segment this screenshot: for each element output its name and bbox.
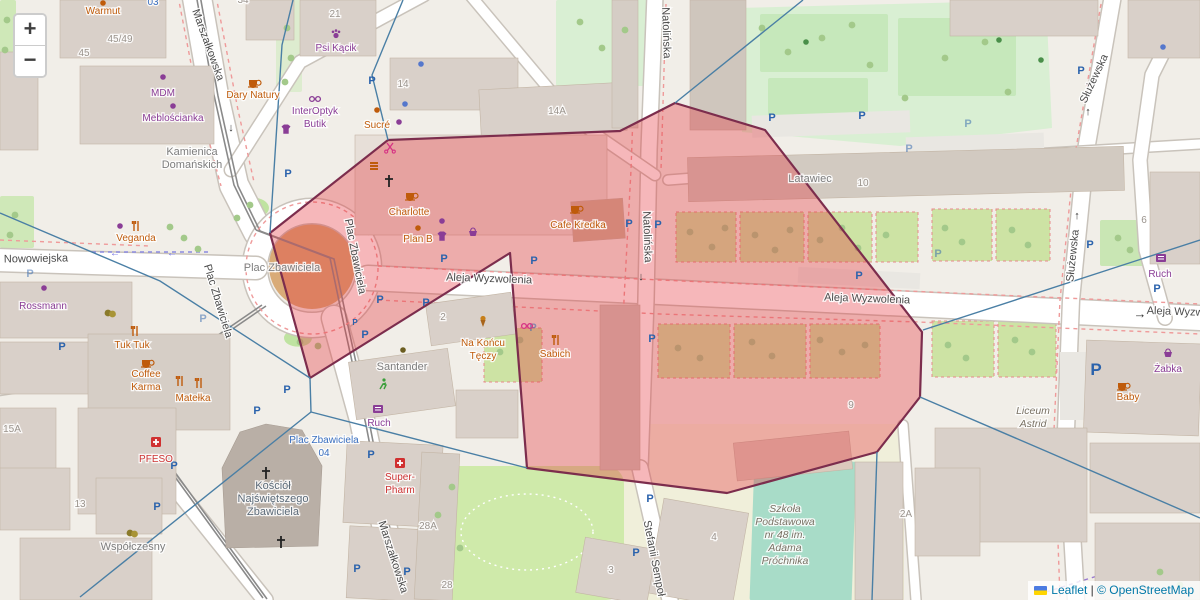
map-label: LiceumAstrid xyxy=(1016,405,1050,430)
tree xyxy=(1025,242,1032,249)
map-label: 4 xyxy=(711,532,717,543)
dot-icon xyxy=(170,103,176,109)
tree xyxy=(1029,349,1036,356)
garden-plot xyxy=(932,321,994,377)
parking-icon: P xyxy=(26,268,33,280)
parking-icon: P xyxy=(1153,283,1160,295)
tree xyxy=(497,349,504,356)
oneway-arrow-icon: ← xyxy=(167,248,177,259)
garden-plot xyxy=(996,209,1050,261)
tree xyxy=(195,246,202,253)
tree xyxy=(1012,337,1019,344)
tree xyxy=(622,27,629,34)
tree xyxy=(234,215,241,222)
zoom-out-button[interactable]: − xyxy=(15,46,45,76)
building xyxy=(1083,340,1200,436)
parking-icon: P xyxy=(1086,239,1093,251)
map-label: Natolińska xyxy=(659,7,673,60)
osm-link[interactable]: © OpenStreetMap xyxy=(1097,583,1194,597)
map-label: Cafe Kredka xyxy=(550,220,606,231)
parking-icon: P xyxy=(352,318,358,327)
building xyxy=(950,0,1098,36)
building xyxy=(456,390,518,438)
map-label: Sabich xyxy=(540,349,571,360)
dot-icon xyxy=(415,225,421,231)
parking-icon: P xyxy=(530,255,537,267)
zoom-in-button[interactable]: + xyxy=(15,15,45,46)
map-label: Veganda xyxy=(116,233,156,244)
tree xyxy=(435,512,442,519)
tree xyxy=(449,484,456,491)
map-label: Charlotte xyxy=(389,207,430,218)
tree xyxy=(282,79,289,86)
dot-icon xyxy=(996,37,1002,43)
map-label: 2A xyxy=(900,509,913,520)
map-label: Żabka xyxy=(1154,362,1182,375)
parking-icon: P xyxy=(858,110,865,122)
map-label: PFESO xyxy=(139,454,173,465)
oneway-arrow-icon: ↓ xyxy=(228,122,234,134)
tree xyxy=(457,545,464,552)
dot-icon xyxy=(100,0,106,6)
dot-icon xyxy=(1038,57,1044,63)
map-label: 10 xyxy=(857,178,869,189)
oneway-arrow-icon: ↑ xyxy=(1074,210,1080,222)
parking-icon: P xyxy=(632,547,639,559)
map-canvas[interactable]: PPPPPPPPPPPPPPPPPPPPPPPPPPPPPPPPPP→↓↑↑↓←… xyxy=(0,0,1200,600)
parking-icon: P xyxy=(768,112,775,124)
parking-icon: P xyxy=(422,297,429,309)
parking-icon: P xyxy=(1090,360,1101,379)
map-label: 2 xyxy=(440,312,446,323)
medical-icon xyxy=(395,458,405,468)
map-label: Plan B xyxy=(403,234,433,245)
parking-icon: P xyxy=(153,501,160,513)
map-label: Latawiec xyxy=(788,173,832,185)
tree xyxy=(959,239,966,246)
map-label: 28A xyxy=(419,521,437,532)
tree xyxy=(4,17,11,24)
tree xyxy=(945,342,952,349)
dot-icon xyxy=(803,39,809,45)
parking-icon: P xyxy=(934,248,941,260)
parking-icon: P xyxy=(654,219,661,231)
boundary-line xyxy=(310,378,311,412)
tree xyxy=(1009,227,1016,234)
map-label: 13 xyxy=(74,499,86,510)
dot-icon xyxy=(400,347,406,353)
parking-icon: P xyxy=(253,405,260,417)
dot-icon xyxy=(439,218,445,224)
map-label: 45 xyxy=(78,48,90,59)
building xyxy=(0,408,56,478)
building xyxy=(80,66,214,144)
map-label: 14 xyxy=(397,79,409,90)
dot-icon xyxy=(41,285,47,291)
map-label: 6 xyxy=(1141,215,1147,226)
tree xyxy=(819,35,826,42)
map-label: Matełka xyxy=(175,393,210,404)
parking-icon: P xyxy=(367,449,374,461)
tree xyxy=(942,225,949,232)
kiosk-icon xyxy=(1156,254,1166,262)
map-label: Natolińska xyxy=(640,211,654,264)
ukraine-flag-icon xyxy=(1034,586,1047,595)
building xyxy=(246,0,294,40)
map-label: Plac Zbawiciela xyxy=(244,262,321,274)
parking-icon: P xyxy=(440,253,447,265)
tree xyxy=(577,19,584,26)
tree xyxy=(167,224,174,231)
tree xyxy=(1127,247,1134,254)
building xyxy=(96,478,162,534)
map-label: Współczesny xyxy=(101,541,166,553)
map-label: 21 xyxy=(329,9,341,20)
map-label: 34 xyxy=(237,0,249,6)
tree xyxy=(599,45,606,52)
garden-plot xyxy=(876,212,918,262)
oneway-arrow-icon: → xyxy=(1134,306,1147,321)
map-label: 15A xyxy=(3,424,21,435)
map-label: 3 xyxy=(608,565,614,576)
parking-icon: P xyxy=(964,118,971,130)
dot-icon xyxy=(402,101,408,107)
building xyxy=(0,468,70,530)
tree xyxy=(247,202,254,209)
parking-icon: P xyxy=(58,341,65,353)
tree xyxy=(7,232,14,239)
tree xyxy=(2,47,9,54)
map-label: Meblościanka xyxy=(142,113,204,124)
attribution-bar: Leaflet | © OpenStreetMap xyxy=(1028,581,1200,600)
map-label: 14A xyxy=(548,106,566,117)
tree xyxy=(849,22,856,29)
dot-icon xyxy=(396,119,402,125)
burger-icon xyxy=(370,163,378,169)
dot-icon xyxy=(1160,44,1166,50)
map-tiles: PPPPPPPPPPPPPPPPPPPPPPPPPPPPPPPPPP→↓↑↑↓←… xyxy=(0,0,1200,600)
parking-icon: P xyxy=(648,333,655,345)
map-label: Sucré xyxy=(364,120,391,131)
parking-icon: P xyxy=(353,563,360,575)
parking-icon: P xyxy=(905,143,912,155)
building xyxy=(855,462,903,600)
oneway-arrow-icon: ↓ xyxy=(638,271,644,283)
parking-icon: P xyxy=(283,384,290,396)
building xyxy=(1150,172,1200,264)
dot-icon xyxy=(418,61,424,67)
map-label: Ruch xyxy=(367,418,390,429)
tree xyxy=(883,232,890,239)
kiosk-icon xyxy=(373,405,383,413)
tree xyxy=(902,95,909,102)
map-label: 9 xyxy=(848,400,854,411)
map-label: Rossmann xyxy=(19,301,67,312)
map-label: 03 xyxy=(147,0,159,8)
attribution-separator: | xyxy=(1087,583,1097,597)
map-label: 28 xyxy=(441,580,453,591)
parking-icon: P xyxy=(376,294,383,306)
parking-icon: P xyxy=(368,75,375,87)
tree xyxy=(867,62,874,69)
tree xyxy=(1157,569,1164,576)
tree xyxy=(1005,89,1012,96)
building xyxy=(612,0,638,128)
parking-icon: P xyxy=(625,218,632,230)
map-label: 45/49 xyxy=(107,34,132,45)
tree xyxy=(963,355,970,362)
parking-icon: P xyxy=(361,329,368,341)
oneway-arrow-icon: ← xyxy=(110,248,120,259)
parking-icon: P xyxy=(284,168,291,180)
map-label: Warmut xyxy=(86,6,121,17)
dot-icon xyxy=(117,223,123,229)
parking-icon: P xyxy=(199,313,206,325)
tree xyxy=(1115,235,1122,242)
tree xyxy=(982,39,989,46)
tree xyxy=(181,235,188,242)
dot-icon xyxy=(374,107,380,113)
map-label: MDM xyxy=(151,88,175,99)
map-label: Psi Kącik xyxy=(315,43,357,54)
parking-icon: P xyxy=(1077,65,1084,77)
map-label: Tuk Tuk xyxy=(114,340,150,351)
medical-icon xyxy=(151,437,161,447)
parking-icon: P xyxy=(855,270,862,282)
garden-plot xyxy=(998,321,1056,377)
dot-icon xyxy=(160,74,166,80)
tree xyxy=(288,55,295,62)
map-label: Dary Natury xyxy=(226,90,279,101)
tree xyxy=(785,49,792,56)
map-label: Santander xyxy=(377,361,428,373)
map-label: Nowowiejska xyxy=(4,252,69,265)
leaflet-link[interactable]: Leaflet xyxy=(1051,583,1087,597)
oneway-arrow-icon: ↑ xyxy=(1085,106,1091,118)
building xyxy=(0,342,96,394)
zoom-control: + − xyxy=(13,13,47,78)
tree xyxy=(12,212,19,219)
map-label: Aleja Wyzwo xyxy=(1146,305,1200,319)
parking-icon: P xyxy=(646,493,653,505)
map-label: Baby xyxy=(1117,392,1140,403)
building xyxy=(915,468,980,556)
tree xyxy=(942,55,949,62)
map-label: KamienicaDomańskich xyxy=(162,146,223,171)
map-label: Ruch xyxy=(1148,269,1171,280)
